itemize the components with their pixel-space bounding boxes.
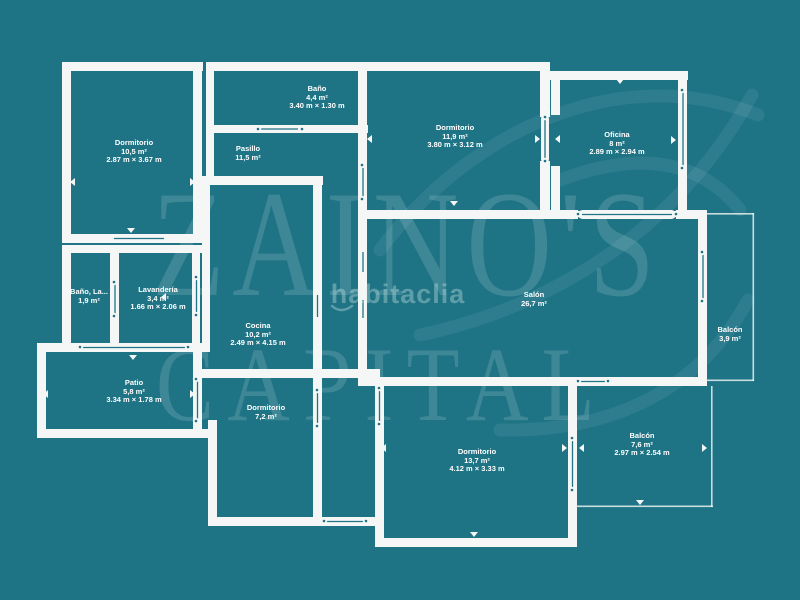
- floor-plan-drawing: [0, 0, 800, 600]
- room-area: 7,2 m²: [247, 413, 285, 422]
- room-label-bano-la: Baño, La... 1,9 m²: [70, 288, 108, 305]
- floor-plan: ZAINO'S CAPITAL: [0, 0, 800, 600]
- room-area: 3,9 m²: [717, 335, 742, 344]
- room-dims: 4.12 m × 3.33 m: [449, 465, 504, 474]
- room-label-cocina: Cocina 10,2 m² 2.49 m × 4.15 m: [230, 322, 285, 348]
- room-label-patio: Patio 5,8 m² 3.34 m × 1.78 m: [106, 379, 161, 405]
- room-label-dormitorio-2: Dormitorio 11,9 m² 3.80 m × 3.12 m: [427, 124, 482, 150]
- room-dims: 2.87 m × 3.67 m: [106, 156, 161, 165]
- room-dims: 2.89 m × 2.94 m: [589, 148, 644, 157]
- room-label-oficina: Oficina 8 m² 2.89 m × 2.94 m: [589, 131, 644, 157]
- room-dims: 2.97 m × 2.54 m: [614, 449, 669, 458]
- room-label-balcon-1: Balcón 3,9 m²: [717, 326, 742, 343]
- room-area: 26,7 m²: [521, 300, 547, 309]
- room-label-balcon-2: Balcón 7,6 m² 2.97 m × 2.54 m: [614, 432, 669, 458]
- room-label-lavanderia: Lavandería 3,4 m² 1.66 m × 2.06 m: [130, 286, 185, 312]
- room-label-dormitorio-3: Dormitorio 7,2 m²: [247, 404, 285, 421]
- room-area: 11,5 m²: [235, 154, 260, 163]
- room-label-pasillo: Pasillo 11,5 m²: [235, 145, 260, 162]
- room-dims: 1.66 m × 2.06 m: [130, 303, 185, 312]
- room-dims: 2.49 m × 4.15 m: [230, 339, 285, 348]
- portal-watermark-smile: [332, 306, 352, 310]
- room-label-salon: Salón 26,7 m²: [521, 291, 547, 308]
- room-label-bano: Baño 4,4 m² 3.40 m × 1.30 m: [289, 85, 344, 111]
- room-area: 1,9 m²: [70, 297, 108, 306]
- room-dims: 3.34 m × 1.78 m: [106, 396, 161, 405]
- room-dims: 3.40 m × 1.30 m: [289, 102, 344, 111]
- room-label-dormitorio-4: Dormitorio 13,7 m² 4.12 m × 3.33 m: [449, 448, 504, 474]
- room-label-dormitorio-1: Dormitorio 10,5 m² 2.87 m × 3.67 m: [106, 139, 161, 165]
- room-dims: 3.80 m × 3.12 m: [427, 141, 482, 150]
